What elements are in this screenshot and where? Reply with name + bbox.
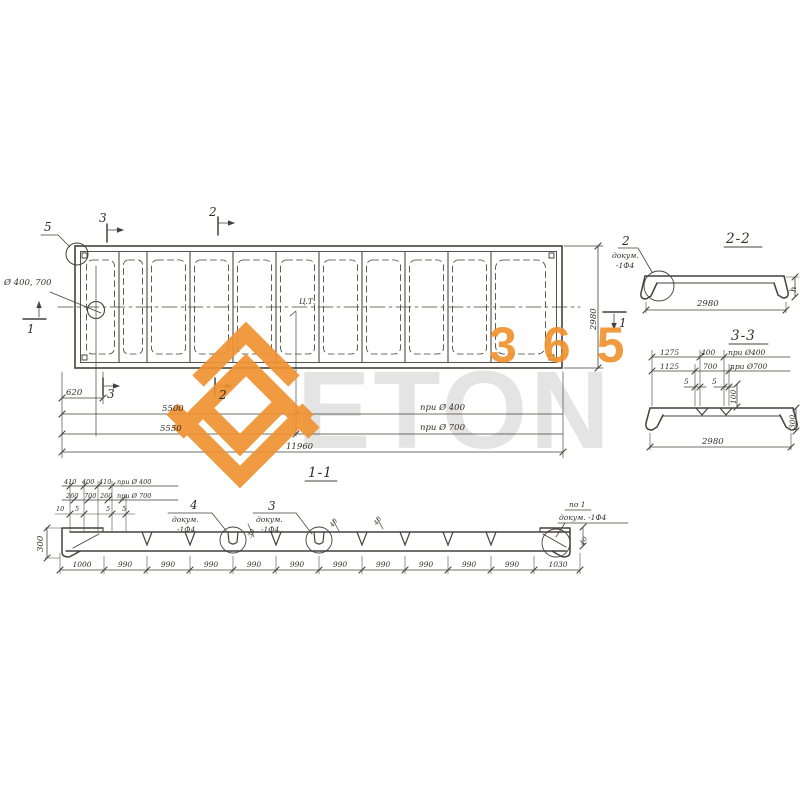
section-1-marker-left: 1 bbox=[27, 322, 35, 336]
section-3-marker-bottom: 3 bbox=[107, 387, 115, 401]
dim-2980-plan: 2980 bbox=[589, 308, 599, 330]
dim-11960: 11960 bbox=[286, 442, 313, 452]
dim-410-b: 410 bbox=[99, 478, 111, 486]
dim-410-a: 410 bbox=[64, 478, 76, 486]
note-dia400: при Ø 400 bbox=[420, 403, 465, 413]
dim-5-e: 5 bbox=[122, 505, 126, 513]
callout-4-line1: докум. bbox=[172, 515, 199, 524]
centroid-label: Ц.Т. bbox=[299, 297, 315, 306]
bottom-dim-3: 990 bbox=[199, 560, 223, 569]
dim-400-s11: 400 bbox=[82, 478, 94, 486]
bottom-dim-7: 990 bbox=[371, 560, 395, 569]
dim-260-b: 260 bbox=[100, 492, 112, 500]
dim-2980-s22: 2980 bbox=[697, 299, 719, 309]
dim-10: 10 bbox=[56, 505, 64, 513]
note-dia700-s33: при Ø700 bbox=[730, 362, 767, 371]
dim-h-s22: h bbox=[789, 287, 799, 292]
dim-300-s33: 300 bbox=[788, 415, 797, 429]
dim-5-d: 5 bbox=[106, 505, 110, 513]
dim-1125: 1125 bbox=[660, 362, 679, 371]
end-callout-line1: по 1 bbox=[569, 500, 586, 509]
dim-700-s11: 700 bbox=[84, 492, 96, 500]
callout-2-line2: -1Ф4 bbox=[616, 261, 634, 270]
dim-700-s33: 700 bbox=[703, 362, 717, 371]
section-3-marker-top: 3 bbox=[99, 211, 107, 225]
bottom-dim-0: 1000 bbox=[70, 560, 94, 569]
bottom-dim-4: 990 bbox=[242, 560, 266, 569]
bottom-dim-5: 990 bbox=[285, 560, 309, 569]
dim-620: 620 bbox=[66, 388, 82, 398]
section-2-marker-bottom: 2 bbox=[219, 388, 227, 402]
note-dia700: при Ø 700 bbox=[420, 423, 465, 433]
section-1-marker-right: 1 bbox=[619, 316, 627, 330]
bottom-dim-11: 1030 bbox=[545, 560, 571, 569]
section-1-1-title: 1-1 bbox=[308, 465, 333, 481]
blueprint-canvas: ETON bbox=[0, 0, 800, 800]
drawing-linework bbox=[0, 0, 800, 800]
dim-5-c: 5 bbox=[75, 505, 79, 513]
note-dia400-s11: при Ø 400 bbox=[117, 478, 151, 486]
dim-2980-s33: 2980 bbox=[702, 437, 724, 447]
bottom-dim-10: 990 bbox=[500, 560, 524, 569]
bottom-dim-2: 990 bbox=[156, 560, 180, 569]
end-callout-line2: докум. -1Ф4 bbox=[559, 513, 606, 522]
dim-400-s33: 400 bbox=[701, 348, 715, 357]
bottom-dim-8: 990 bbox=[414, 560, 438, 569]
callout-3-num: 3 bbox=[268, 499, 276, 513]
bottom-dim-9: 990 bbox=[457, 560, 481, 569]
dim-100-s33: 100 bbox=[729, 390, 738, 404]
section-2-marker-top: 2 bbox=[209, 205, 217, 219]
callout-2-num: 2 bbox=[622, 234, 630, 248]
dim-1275: 1275 bbox=[660, 348, 679, 357]
note-dia700-s11: при Ø 700 bbox=[117, 492, 151, 500]
bottom-dim-1: 990 bbox=[113, 560, 137, 569]
dim-5-b: 5 bbox=[712, 377, 717, 386]
callout-2-line1: докум. bbox=[612, 251, 639, 260]
section-2-2-title: 2-2 bbox=[726, 231, 751, 247]
dim-5-a: 5 bbox=[684, 377, 689, 386]
dim-5500: 5500 bbox=[162, 404, 184, 414]
dim-260-a: 260 bbox=[66, 492, 78, 500]
dim-300-s11: 300 bbox=[36, 536, 46, 552]
callout-3-line1: докум. bbox=[256, 515, 283, 524]
dim-5550: 5550 bbox=[160, 424, 182, 434]
callout-4-line2: -1Ф4 bbox=[177, 525, 195, 534]
detail-5-label: 5 bbox=[44, 220, 52, 234]
note-dia400-s33: при Ø400 bbox=[728, 348, 765, 357]
section-3-3 bbox=[646, 344, 799, 450]
hole-diameter-note: Ø 400, 700 bbox=[4, 278, 52, 288]
bottom-dim-6: 990 bbox=[328, 560, 352, 569]
section-3-3-title: 3-3 bbox=[731, 328, 756, 344]
callout-3-line2: -1Ф4 bbox=[261, 525, 279, 534]
callout-4-num: 4 bbox=[190, 498, 198, 512]
